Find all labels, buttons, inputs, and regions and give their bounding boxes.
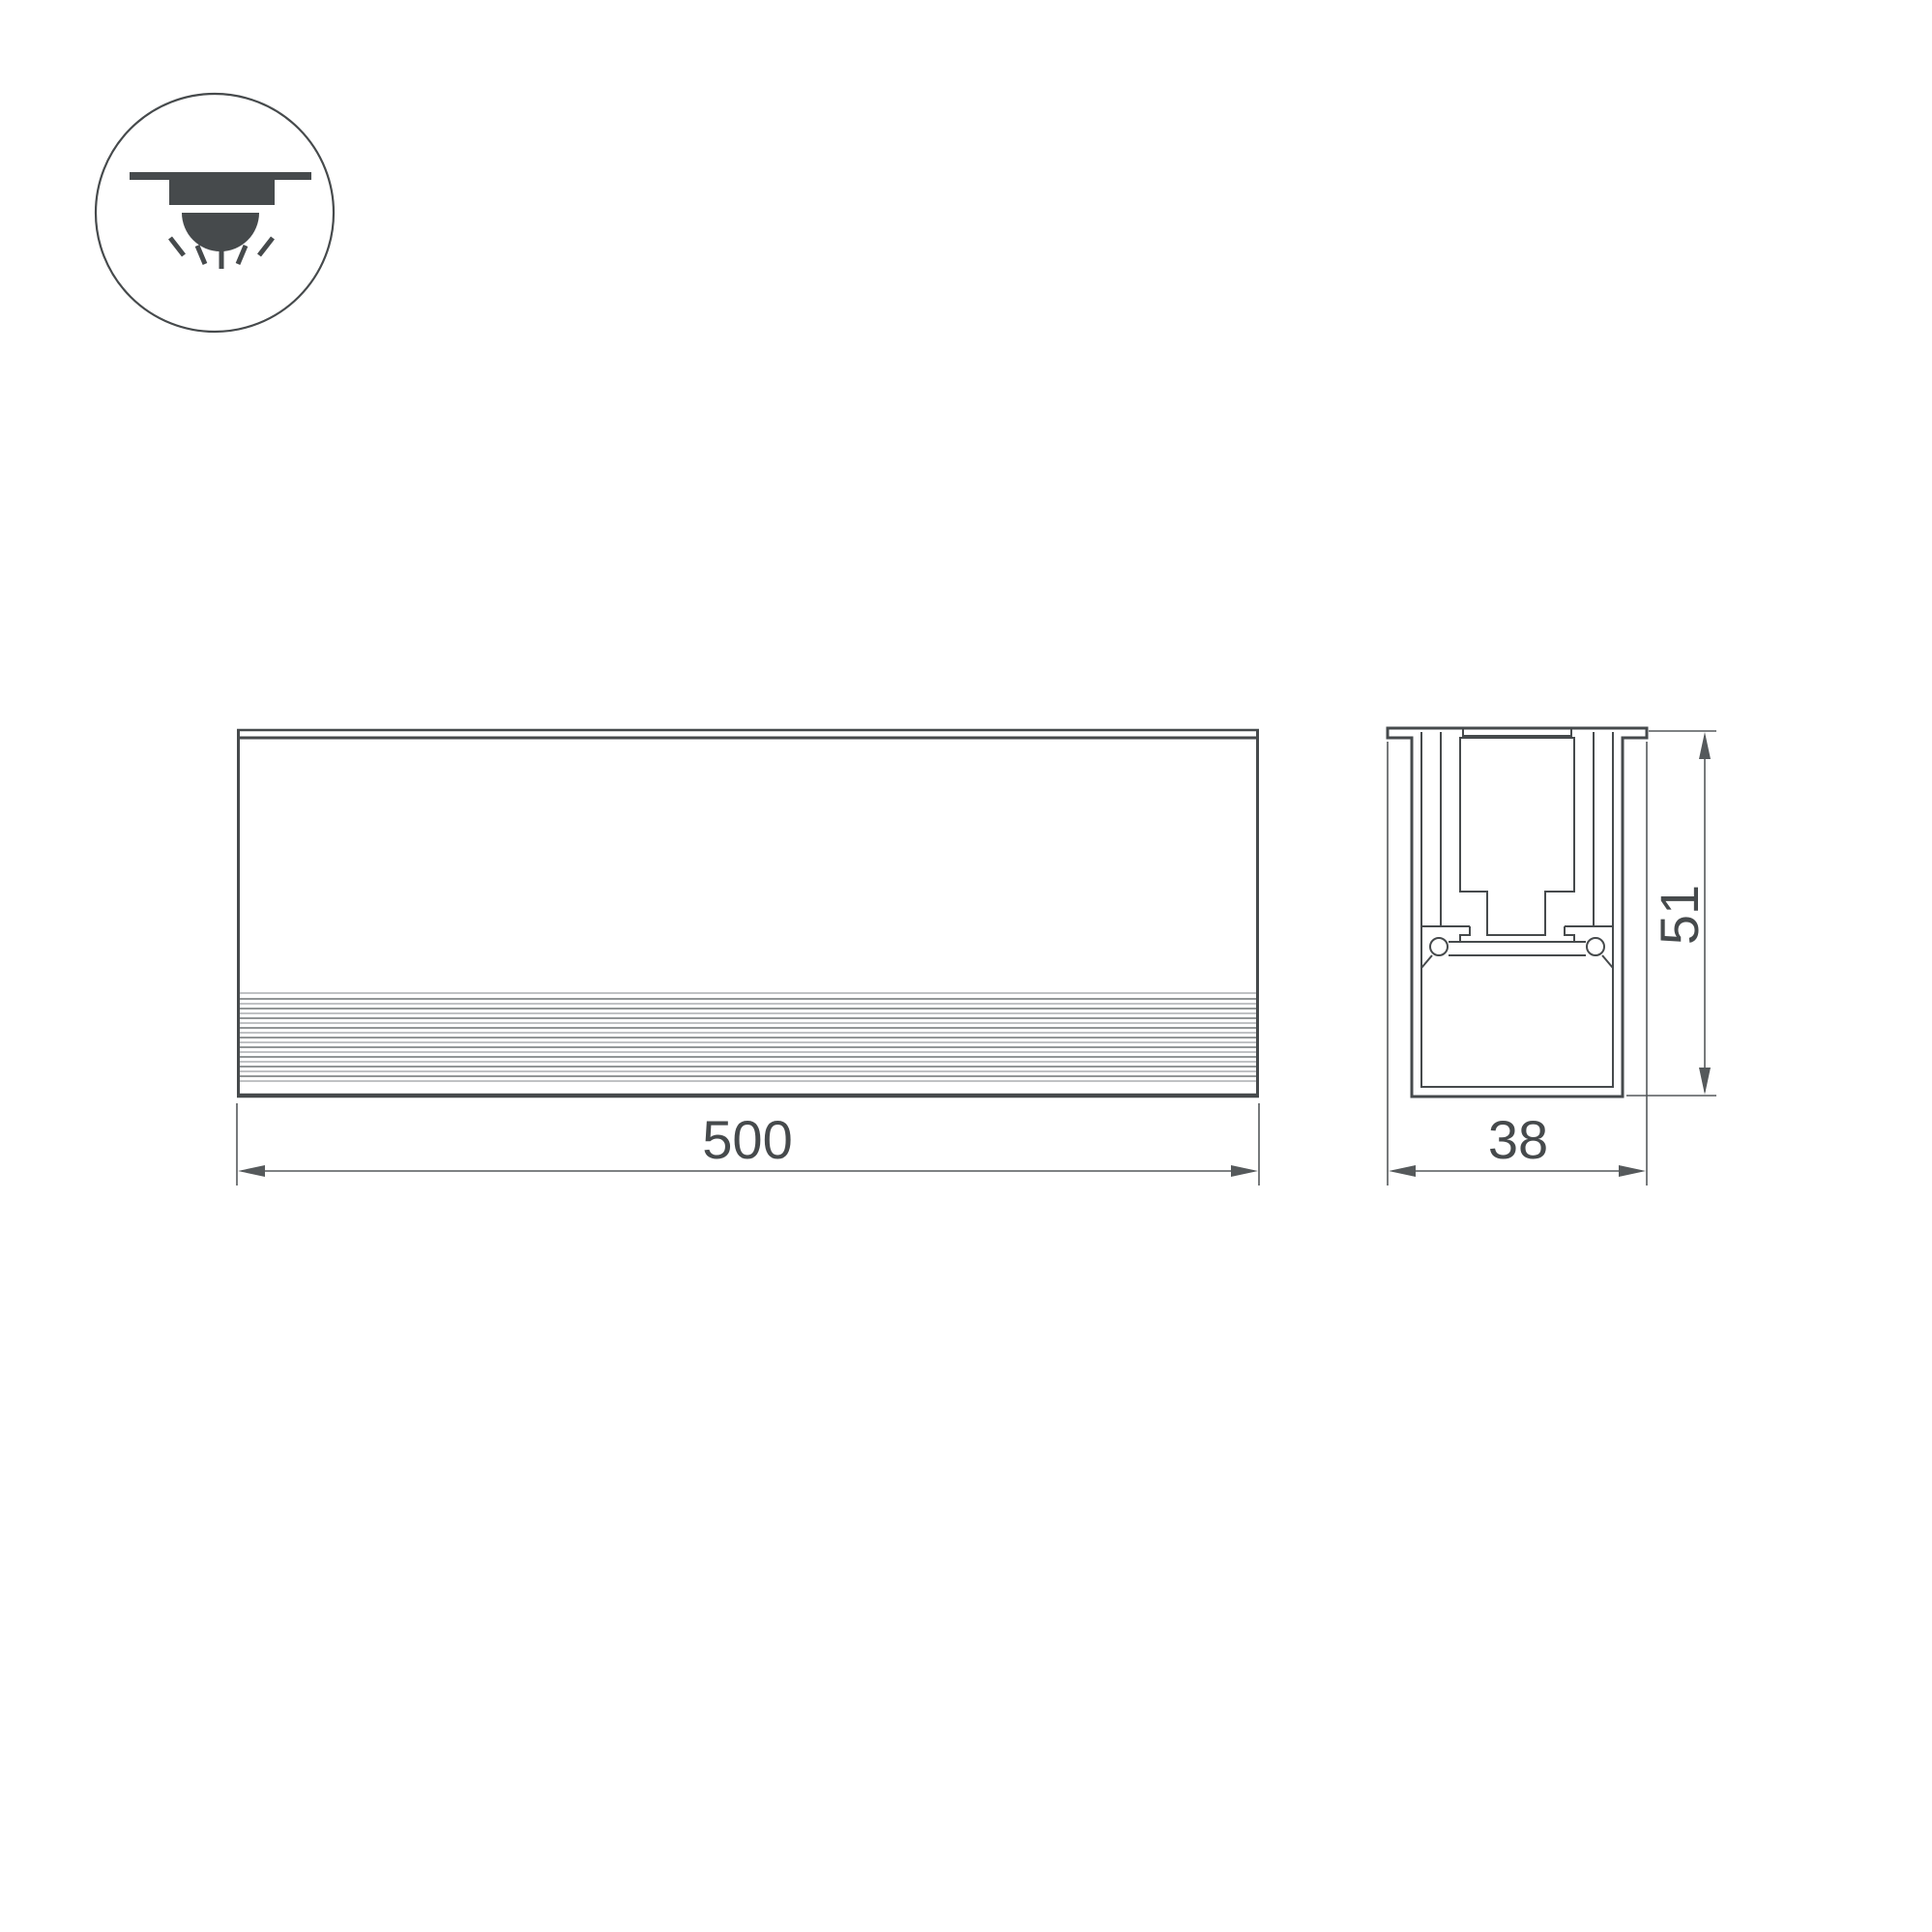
dimension-label-height: 51 (1649, 885, 1710, 945)
dimension-width: 38 (1388, 742, 1647, 1186)
arrowhead-right-icon (1231, 1165, 1258, 1177)
ceiling-line (130, 172, 311, 180)
lower-cavity (1421, 968, 1613, 1087)
right-hook (1565, 926, 1574, 942)
profile-section-view (1388, 728, 1647, 1097)
arrowhead-down-icon (1699, 1068, 1711, 1095)
section-outer-contour (1388, 728, 1647, 1097)
diffuser-ribs (240, 993, 1256, 1081)
recessed-housing (169, 180, 275, 205)
dimension-label-width: 38 (1488, 1109, 1548, 1170)
upper-cavity (1460, 738, 1574, 935)
drawing-svg: 500 38 (0, 0, 1932, 1932)
arrowhead-right-icon (1619, 1165, 1646, 1177)
dimension-label-length: 500 (702, 1109, 792, 1170)
left-hook (1460, 926, 1470, 942)
dimension-height: 51 (1626, 731, 1716, 1096)
recessed-downlight-icon (96, 94, 334, 332)
technical-drawing-canvas: 500 38 (0, 0, 1932, 1932)
screw-port-left (1430, 938, 1448, 955)
lamp-dome (182, 213, 259, 251)
dimension-length: 500 (237, 1103, 1259, 1186)
arrowhead-left-icon (238, 1165, 265, 1177)
screw-port-right (1587, 938, 1604, 955)
profile-front-view (237, 730, 1259, 1096)
arrowhead-left-icon (1389, 1165, 1416, 1177)
arrowhead-up-icon (1699, 732, 1711, 759)
